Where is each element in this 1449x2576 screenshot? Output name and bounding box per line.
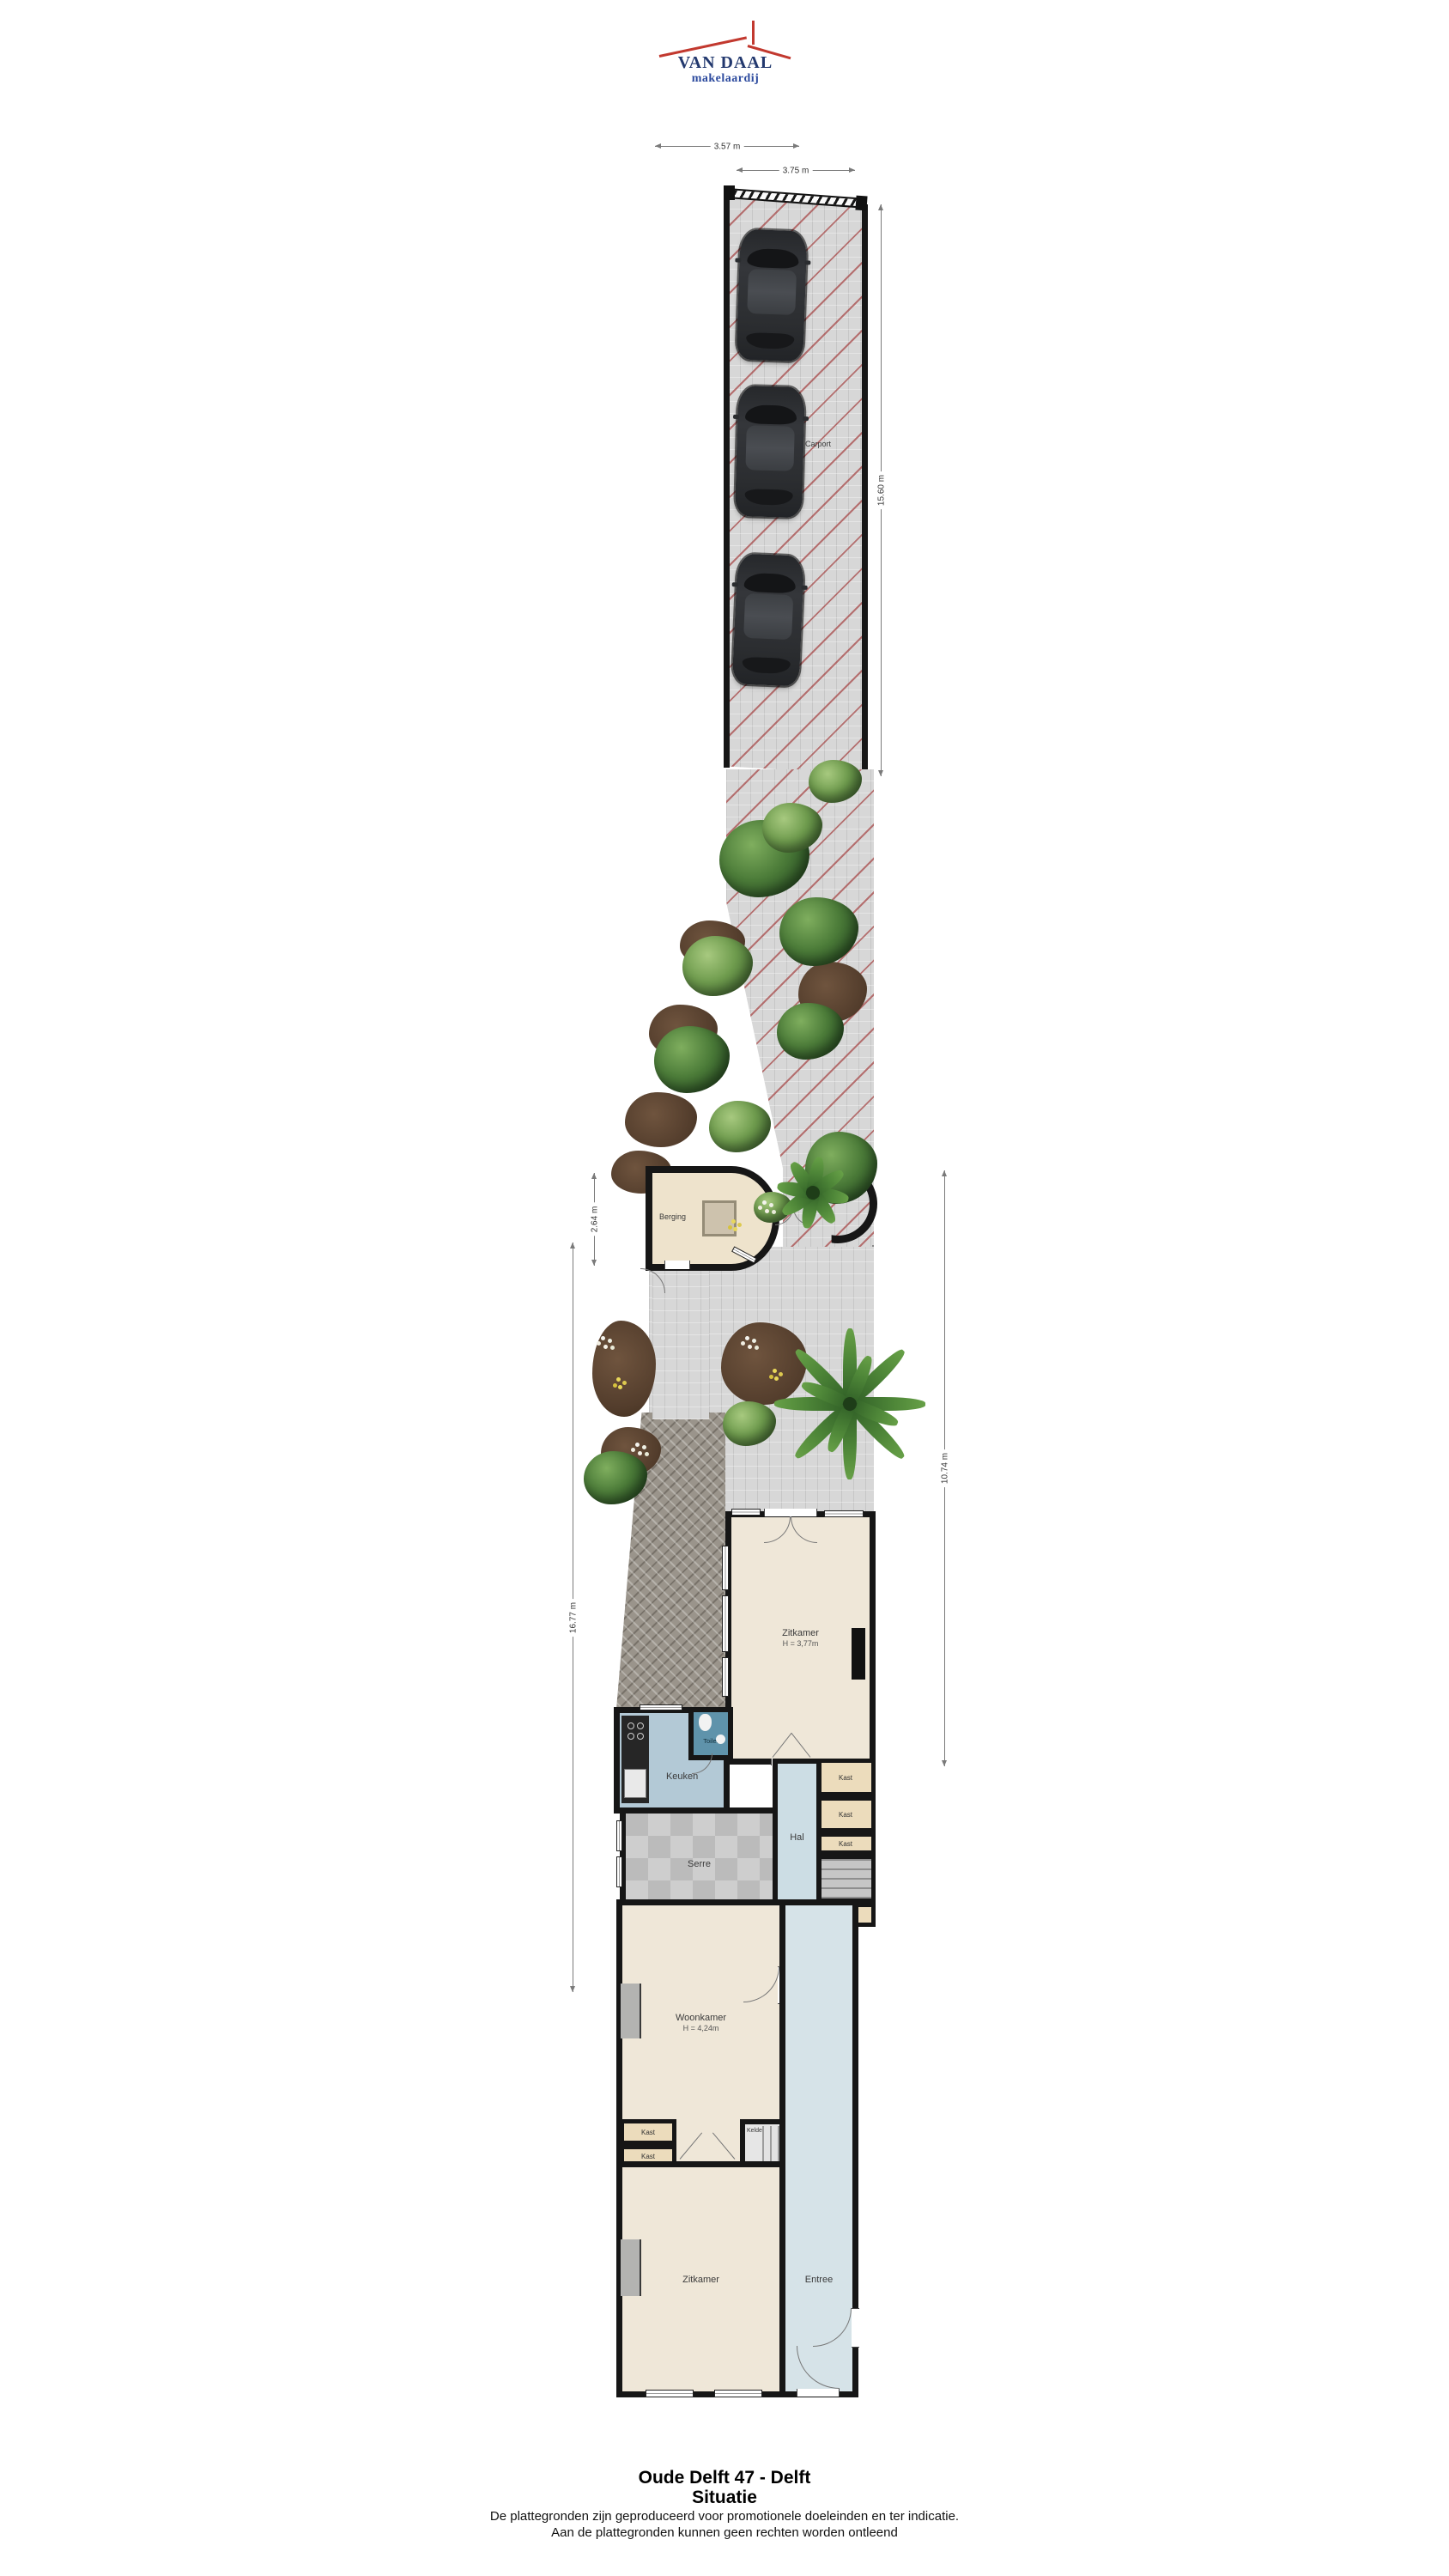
stove-icon (627, 1733, 634, 1740)
shed-skylight (702, 1200, 737, 1236)
front-door-opening (797, 2389, 840, 2397)
stove-icon (627, 1722, 634, 1729)
stairs-icon (815, 1855, 876, 1903)
door-opening (852, 2308, 859, 2348)
dimension-label: 15.60 m (876, 471, 887, 509)
closet-label: Kast (839, 1774, 852, 1782)
dimension-width-gate: 3.75 m (737, 170, 855, 171)
room-toilet: Toilet (688, 1707, 733, 1760)
closet: Kast (815, 1832, 876, 1855)
room-label: Zitkamer (622, 2275, 779, 2286)
sink-icon (716, 1735, 725, 1744)
floorplan-page: VAN DAAL makelaardij 3.57 m 3.75 m Carpo… (0, 0, 1449, 2576)
palm-icon (783, 1163, 843, 1223)
flower-icon (635, 1443, 640, 1447)
tree-icon (709, 1101, 771, 1152)
car-icon (735, 386, 805, 518)
fireplace-icon (621, 1984, 641, 2038)
plan-type: Situatie (0, 2488, 1449, 2508)
window (722, 1595, 729, 1652)
tree-icon (654, 1026, 730, 1093)
disclaimer-line-2: Aan de plattegronden kunnen geen rechten… (0, 2525, 1449, 2540)
window (824, 1510, 864, 1517)
kitchen-counter (621, 1716, 649, 1803)
garden-door-opening (764, 1509, 817, 1516)
stove-icon (637, 1733, 644, 1740)
toilet-icon (699, 1714, 712, 1731)
room-label: Serre (626, 1859, 773, 1870)
flower-icon (762, 1200, 767, 1205)
tree-icon (682, 936, 753, 996)
zitkamer-ceiling-height: H = 3,77m (731, 1639, 870, 1649)
closet-label: Kast (839, 1840, 852, 1848)
palm-icon (768, 1322, 931, 1485)
logo-name: VAN DAAL (652, 53, 798, 73)
berging-label: Berging (659, 1212, 686, 1221)
closet: Kast (815, 1759, 876, 1796)
closet: Kast (620, 2119, 676, 2145)
dimension-carport-length: 15.60 m (881, 204, 882, 776)
shed-door-opening (664, 1261, 690, 1269)
flower-icon (616, 1377, 621, 1382)
window (731, 1509, 761, 1516)
window (722, 1657, 729, 1697)
dimension-garden-right: 10.74 m (944, 1170, 945, 1766)
dimension-label: 3.57 m (711, 142, 744, 151)
dimension-berging-depth: 2.64 m (594, 1173, 595, 1266)
closet-label: Kast (641, 2153, 655, 2160)
closet-label: Kast (839, 1811, 852, 1819)
woonkamer-name: Woonkamer (622, 2013, 779, 2024)
agency-logo: VAN DAAL makelaardij (652, 19, 798, 91)
fireplace-icon (621, 2239, 641, 2296)
flower-icon (601, 1336, 605, 1340)
window (714, 2390, 762, 2397)
window (616, 1820, 622, 1851)
fireplace-icon (852, 1628, 865, 1680)
room-label: Woonkamer H = 4,24m (622, 2013, 779, 2033)
room-label: Entree (785, 2275, 852, 2286)
dimension-width-top: 3.57 m (655, 146, 799, 147)
zitkamer-name: Zitkamer (731, 1628, 870, 1639)
dimension-label: 2.64 m (589, 1203, 600, 1236)
stove-icon (637, 1722, 644, 1729)
closet-label: Kast (641, 2129, 655, 2136)
window (616, 1856, 622, 1887)
woonkamer-ceiling-height: H = 4,24m (622, 2024, 779, 2033)
dimension-label: 10.74 m (939, 1449, 950, 1487)
gate-post-icon (724, 185, 735, 200)
soil-bed (592, 1321, 656, 1417)
dimension-label: 3.75 m (779, 166, 813, 175)
car-icon (732, 553, 805, 686)
flower-icon (731, 1219, 736, 1224)
closet: Kast (815, 1796, 876, 1832)
window (722, 1546, 729, 1590)
car-icon (736, 229, 807, 362)
soil-bed (625, 1092, 697, 1147)
plan-address: Oude Delft 47 - Delft (0, 2468, 1449, 2488)
window (646, 2390, 694, 2397)
room-label: Keuken (640, 1771, 724, 1783)
room-label: Zitkamer H = 3,77m (731, 1628, 870, 1649)
carport-label: Carport (805, 440, 831, 448)
room-serre: Serre (620, 1807, 779, 1906)
dimension-label: 16.77 m (567, 1598, 579, 1636)
gate-post-icon (855, 196, 867, 211)
room-label: Hal (778, 1832, 816, 1844)
carport-left-wall (724, 192, 730, 768)
room-hal: Hal (773, 1759, 822, 1906)
window (640, 1704, 682, 1710)
logo-chimney-icon (752, 21, 755, 45)
logo-tagline: makelaardij (652, 72, 798, 86)
carport-right-wall (862, 204, 868, 775)
dimension-garden-left: 16.77 m (573, 1242, 573, 1992)
disclaimer-line-1: De plattegronden zijn geproduceerd voor … (0, 2509, 1449, 2524)
flower-icon (745, 1336, 749, 1340)
room-zitkamer-voor: Zitkamer (616, 2161, 785, 2397)
sink-icon (624, 1769, 646, 1798)
stairs-icon (762, 2126, 780, 2162)
